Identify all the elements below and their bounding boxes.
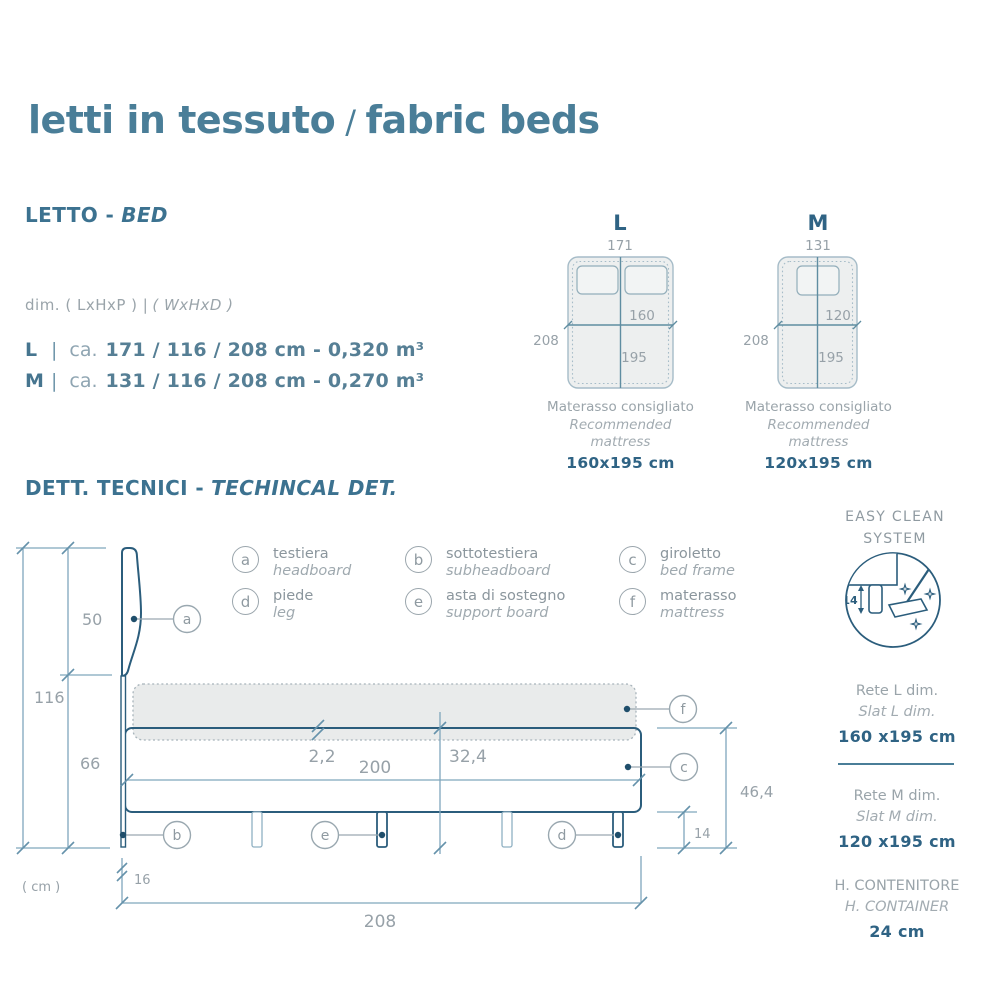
headboard-shape	[122, 548, 141, 676]
easy-clean-leg-dim: 14	[842, 594, 858, 607]
caption-m-size: 120x195 cm	[736, 455, 901, 473]
easy-clean-leg	[869, 585, 882, 613]
callout-letter-b: b	[173, 828, 182, 844]
easy-clean-icon: 14	[838, 545, 953, 655]
caption-m-it: Materasso consigliato	[736, 399, 901, 417]
caption-l: Materasso consigliato Recommended mattre…	[538, 399, 703, 472]
spec-approx: ca.	[69, 370, 97, 392]
diagram-l-width-dim: 160	[629, 308, 655, 324]
dim-headboard-height: 50	[82, 610, 102, 629]
leg-front-2	[613, 812, 623, 847]
panel-divider	[838, 763, 954, 765]
dim-unit: ( cm )	[22, 880, 60, 895]
dim-total-height: 116	[34, 688, 65, 707]
callout-dot-b	[120, 832, 126, 838]
diagram-l-side-dim: 208	[533, 333, 559, 349]
spec-row-m: M | ca. 131 / 116 / 208 cm - 0,270 m³	[25, 365, 424, 396]
section-heading-tech: DETT. TECNICI -TECHINCAL DET.	[25, 476, 398, 500]
callout-dot-d	[615, 832, 621, 838]
diagram-m-top-dim: 131	[805, 238, 831, 254]
easy-clean-bed-corner	[838, 540, 897, 585]
callout-letter-c: c	[680, 760, 688, 776]
panel-slat-l-en: Slat L dim.	[820, 702, 974, 723]
diagram-l-label: L	[613, 211, 626, 235]
bed-outline-l	[564, 257, 677, 388]
easy-clean-title: EASY CLEAN SYSTEM	[830, 506, 960, 550]
caption-m: Materasso consigliato Recommended mattre…	[736, 399, 901, 472]
dim-frame-height: 32,4	[449, 747, 487, 767]
leg-front-1	[377, 812, 387, 847]
caption-l-size: 160x195 cm	[538, 455, 703, 473]
caption-l-it: Materasso consigliato	[538, 399, 703, 417]
tech-heading-en: TECHINCAL DET.	[211, 476, 397, 500]
technical-drawing: 50 116 66 ( cm ) 2,2 200 32,4 46,4 14 16…	[0, 530, 780, 940]
diagram-m-width-dim: 120	[825, 308, 851, 324]
subheadboard-shape	[121, 676, 126, 847]
panel-slat-m-value: 120 x195 cm	[820, 831, 974, 852]
letto-heading-it: LETTO -	[25, 203, 114, 227]
dim-inner-length: 200	[359, 758, 391, 778]
callout-dot-c	[625, 764, 631, 770]
spec-sep: |	[51, 370, 57, 392]
panel-container-value: 24 cm	[820, 921, 974, 942]
dim-base-height: 66	[80, 754, 100, 773]
section-heading-letto: LETTO -BED	[25, 203, 168, 227]
dim-side-height: 46,4	[740, 783, 773, 801]
leg-back-1	[252, 812, 262, 847]
caption-m-en: Recommended mattress	[736, 417, 901, 452]
spec-size-l: L	[25, 339, 51, 361]
spec-size-m: M	[25, 370, 51, 392]
tech-heading-it: DETT. TECNICI -	[25, 476, 204, 500]
dim-total-length: 208	[364, 912, 396, 932]
panel-slat-l-it: Rete L dim.	[820, 681, 974, 702]
panel-slat-m-en: Slat M dim.	[820, 807, 974, 828]
bed-spec-list: L | ca. 171 / 116 / 208 cm - 0,320 m³ M …	[25, 334, 424, 396]
page-title-english: fabric beds	[365, 98, 599, 142]
diagram-l-top-dim: 171	[607, 238, 633, 254]
callout-letter-e: e	[321, 828, 330, 844]
diagram-m-length-dim: 195	[818, 350, 844, 366]
panel-slat-m-it: Rete M dim.	[820, 786, 974, 807]
panel-container-height: H. CONTENITORE H. CONTAINER 24 cm	[820, 876, 974, 942]
dim-label-wxhxd: ( WxHxD )	[152, 296, 233, 314]
leg-back-2	[502, 812, 512, 847]
diagram-l-length-dim: 195	[621, 350, 647, 366]
page-title-italian: letti in tessuto	[28, 98, 335, 142]
letto-heading-en: BED	[121, 203, 168, 227]
dimension-format-label: dim. ( LxHxP ) |( WxHxD )	[25, 296, 234, 314]
dim-back-depth: 16	[134, 873, 151, 888]
pillow-right	[625, 266, 667, 294]
spec-sheet-page: letti in tessuto/fabric beds LETTO -BED …	[0, 0, 1000, 1000]
callout-letter-d: d	[558, 828, 567, 844]
panel-container-en: H. CONTAINER	[820, 897, 974, 918]
dim-leg-height: 14	[694, 827, 711, 842]
dim-gap: 2,2	[308, 747, 335, 767]
panel-slat-l-value: 160 x195 cm	[820, 726, 974, 747]
page-title: letti in tessuto/fabric beds	[28, 98, 600, 142]
spec-dims-m: 131 / 116 / 208 cm - 0,270 m³	[106, 370, 425, 392]
caption-l-en: Recommended mattress	[538, 417, 703, 452]
diagram-m-side-dim: 208	[743, 333, 769, 349]
callout-dot-e	[379, 832, 385, 838]
spec-dims-l: 171 / 116 / 208 cm - 0,320 m³	[106, 339, 425, 361]
callout-dot-f	[624, 706, 630, 712]
pillow-left	[577, 266, 618, 294]
spec-sep: |	[51, 339, 57, 361]
diagram-m-label: M	[808, 211, 829, 235]
page-title-separator: /	[335, 103, 365, 141]
dim-label-prefix: dim. ( LxHxP ) |	[25, 296, 148, 314]
callout-letter-a: a	[183, 612, 192, 628]
mattress-shape	[133, 684, 636, 740]
spec-approx: ca.	[69, 339, 97, 361]
panel-slat-l: Rete L dim. Slat L dim. 160 x195 cm	[820, 681, 974, 747]
easy-clean-line1: EASY CLEAN	[830, 506, 960, 528]
panel-slat-m: Rete M dim. Slat M dim. 120 x195 cm	[820, 786, 974, 852]
callout-dot-a	[131, 616, 137, 622]
spec-row-l: L | ca. 171 / 116 / 208 cm - 0,320 m³	[25, 334, 424, 365]
bed-diagram-m: M 131 208 120 195	[730, 210, 875, 395]
panel-container-it: H. CONTENITORE	[820, 876, 974, 897]
bed-diagram-l: L 171 208 160 195	[528, 210, 698, 395]
